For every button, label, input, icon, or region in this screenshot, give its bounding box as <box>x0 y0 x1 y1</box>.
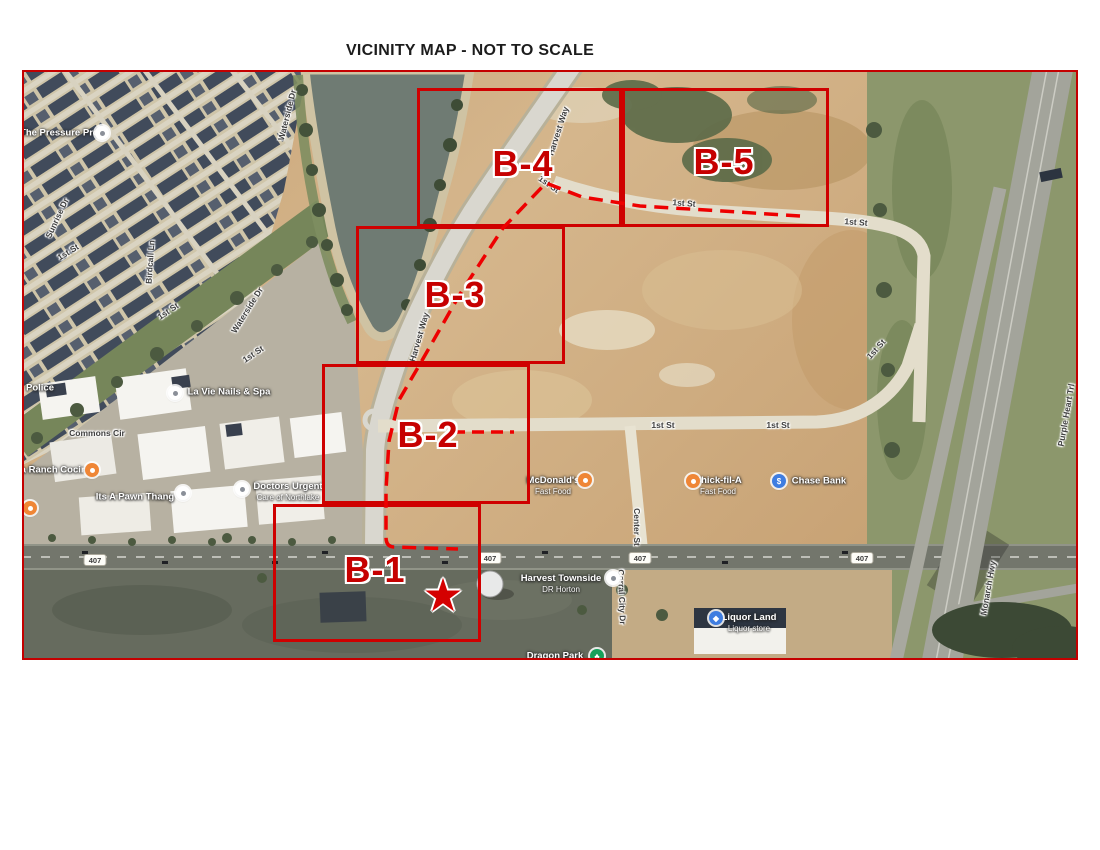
poi-label: Harvest TownsideDR Horton <box>521 573 602 595</box>
vicinity-map-page: VICINITY MAP - NOT TO SCALE <box>0 0 1100 850</box>
satellite-map: Sunrise Dr1st StBirdcall LnWaterside DrW… <box>22 70 1078 660</box>
route-shield-407: 407 <box>851 552 874 564</box>
orange-poi-pin-icon <box>578 473 592 487</box>
green-poi-pin-icon: ♣ <box>590 649 604 660</box>
poi-label: Liquor LandLiquor store <box>722 612 777 634</box>
orange-poi-pin-icon <box>85 463 99 477</box>
poi-label: Chick-fil-AFast Food <box>694 475 742 497</box>
overlay-box-label-b-2: B-2 <box>397 414 458 456</box>
route-shield-407: 407 <box>629 552 652 564</box>
poi-label: Its A Pawn Thang <box>96 492 174 503</box>
poi-label: la Ranch Cocina <box>22 465 92 476</box>
site-star-icon: ★ <box>422 572 463 618</box>
orange-poi-pin-icon <box>686 474 700 488</box>
poi-label: Chase Bank <box>792 476 846 487</box>
white-poi-pin-icon <box>168 386 182 400</box>
orange-poi-pin-icon <box>23 501 37 515</box>
overlay-box-label-b-4: B-4 <box>492 143 553 185</box>
poi-label: Police <box>26 383 54 394</box>
white-poi-pin-icon <box>235 482 249 496</box>
route-shield-407: 407 <box>479 552 502 564</box>
route-shield-407: 407 <box>84 554 107 566</box>
poi-label: The Pressure Pros <box>22 128 104 139</box>
street-label: Center St <box>632 508 642 546</box>
white-poi-pin-icon <box>606 571 620 585</box>
blue-poi-pin-icon: ◆ <box>709 611 723 625</box>
poi-label: McDonald'sFast Food <box>527 475 580 497</box>
white-poi-pin-icon <box>95 126 109 140</box>
poi-label: Dragon Park <box>527 651 584 661</box>
poi-label: La Vie Nails & Spa <box>188 387 271 398</box>
street-label: 1st St <box>844 216 868 228</box>
white-poi-pin-icon <box>176 486 190 500</box>
street-label: Commons Cir <box>69 428 125 438</box>
overlay-box-label-b-1: B-1 <box>344 549 405 591</box>
street-label: 1st St <box>651 420 674 430</box>
street-label: 1st St <box>766 420 789 430</box>
overlay-box-label-b-3: B-3 <box>424 274 485 316</box>
poi-label: Doctors UrgentCare of Northlake <box>253 481 322 503</box>
blue-poi-pin-icon: $ <box>772 474 786 488</box>
page-title: VICINITY MAP - NOT TO SCALE <box>0 42 940 60</box>
overlay-box-label-b-5: B-5 <box>693 141 754 183</box>
